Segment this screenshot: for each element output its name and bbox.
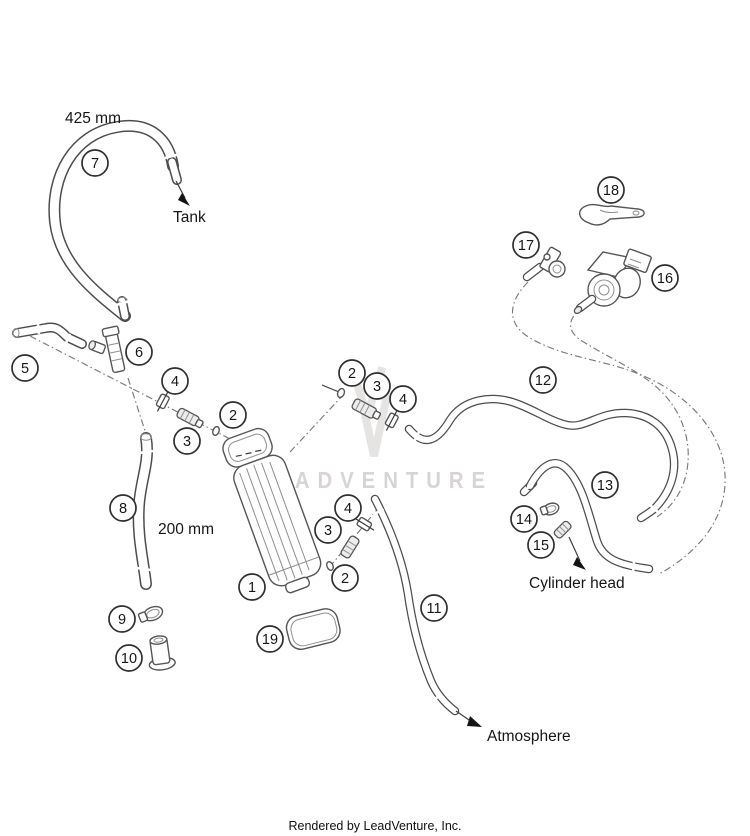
svg-text:14: 14: [516, 512, 532, 528]
svg-text:1: 1: [248, 580, 256, 596]
svg-text:5: 5: [21, 361, 29, 377]
svg-text:2: 2: [348, 366, 356, 382]
svg-text:17: 17: [518, 238, 534, 254]
breather-tube-5: [13, 324, 82, 344]
plug-10: [145, 634, 175, 671]
callout-1[interactable]: 1: [239, 574, 265, 600]
hose-7-tank: [54, 126, 180, 316]
svg-text:3: 3: [373, 379, 381, 395]
label-dim-200mm: 200 mm: [158, 521, 214, 538]
label-tank: Tank: [173, 209, 206, 226]
svg-text:12: 12: [535, 373, 551, 389]
callout-14[interactable]: 14: [511, 506, 537, 532]
canister-1: [220, 423, 328, 597]
svg-text:6: 6: [135, 345, 143, 361]
fitting-15: [553, 520, 572, 539]
label-dim-425mm: 425 mm: [65, 110, 121, 127]
label-cylinder-head: Cylinder head: [529, 575, 625, 592]
callout-6[interactable]: 6: [126, 339, 152, 365]
valve-6: [84, 326, 127, 377]
callout-5[interactable]: 5: [12, 355, 38, 381]
clamp-14: [540, 501, 561, 517]
callout-11[interactable]: 11: [421, 595, 447, 621]
footer-credit: Rendered by LeadVenture, Inc.: [0, 819, 750, 833]
callout-10[interactable]: 10: [116, 645, 142, 671]
svg-text:7: 7: [91, 156, 99, 172]
label-atmosphere: Atmosphere: [487, 728, 571, 745]
callout-9[interactable]: 9: [109, 606, 135, 632]
callout-2[interactable]: 2: [332, 565, 358, 591]
svg-text:2: 2: [229, 408, 237, 424]
hose-8-200mm: [137, 434, 153, 584]
svg-text:4: 4: [399, 392, 407, 408]
svg-text:15: 15: [533, 538, 549, 554]
callout-3[interactable]: 3: [315, 517, 341, 543]
callout-17[interactable]: 17: [513, 232, 539, 258]
callout-3[interactable]: 3: [174, 428, 200, 454]
callout-16[interactable]: 16: [652, 265, 678, 291]
svg-text:10: 10: [121, 651, 137, 667]
svg-text:2: 2: [341, 571, 349, 587]
callout-4[interactable]: 4: [162, 368, 188, 394]
svg-text:3: 3: [183, 434, 191, 450]
callout-8[interactable]: 8: [110, 495, 136, 521]
svg-text:9: 9: [118, 612, 126, 628]
svg-text:4: 4: [171, 374, 179, 390]
pad-19: [284, 606, 343, 652]
hose-12: [409, 399, 674, 518]
callout-7[interactable]: 7: [82, 150, 108, 176]
clamp-9: [138, 604, 165, 625]
svg-text:4: 4: [344, 501, 352, 517]
callout-13[interactable]: 13: [592, 472, 618, 498]
svg-text:19: 19: [262, 632, 278, 648]
callout-12[interactable]: 12: [530, 367, 556, 393]
svg-text:3: 3: [324, 523, 332, 539]
bracket-18: [580, 205, 645, 225]
callout-19[interactable]: 19: [257, 626, 283, 652]
purge-valve-16: [573, 249, 652, 315]
svg-text:11: 11: [426, 601, 441, 617]
svg-text:18: 18: [603, 183, 619, 199]
callout-3[interactable]: 3: [364, 373, 390, 399]
evap-canister-diagram: LEADVENTURE: [0, 0, 750, 836]
callout-15[interactable]: 15: [528, 532, 554, 558]
svg-text:16: 16: [657, 271, 673, 287]
svg-text:8: 8: [119, 501, 127, 517]
callout-18[interactable]: 18: [598, 177, 624, 203]
parts-diagram-page: LEADVENTURE: [0, 0, 750, 836]
callout-2[interactable]: 2: [339, 360, 365, 386]
callout-4[interactable]: 4: [390, 386, 416, 412]
callout-2[interactable]: 2: [220, 402, 246, 428]
callout-4[interactable]: 4: [335, 495, 361, 521]
svg-text:13: 13: [597, 478, 613, 494]
